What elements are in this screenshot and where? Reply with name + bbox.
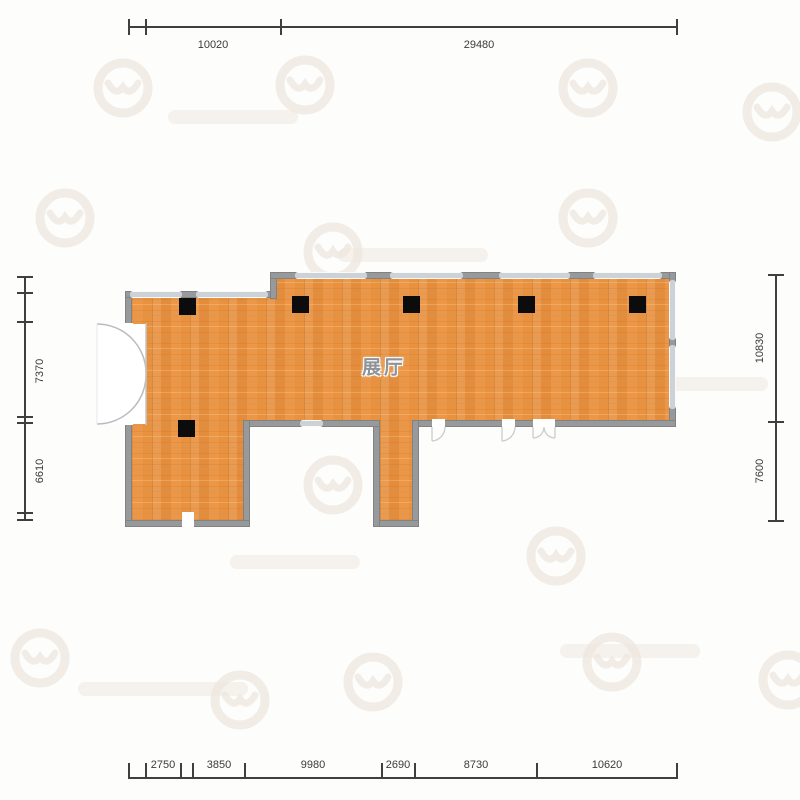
dim-tick: [244, 763, 246, 779]
dim-tick: [381, 763, 383, 779]
column-marker: [403, 296, 420, 313]
dim-label: 10020: [198, 39, 229, 51]
column-marker: [292, 296, 309, 313]
dim-tick: [180, 763, 182, 779]
dim-tick: [414, 763, 416, 779]
dim-label: 8730: [464, 759, 488, 771]
dim-label: 9980: [301, 759, 325, 771]
dim-tick: [17, 321, 33, 323]
dim-label: 7370: [34, 359, 46, 383]
dim-line: [775, 275, 777, 522]
dim-line: [129, 777, 678, 779]
dim-tick: [768, 421, 784, 423]
dim-tick: [768, 274, 784, 276]
floor-plan: 展厅 10020 29480 2750 3850 9980 2690 8730 …: [0, 0, 800, 800]
dim-tick: [17, 422, 33, 424]
dim-tick: [17, 292, 33, 294]
dim-tick: [280, 19, 282, 35]
dim-tick: [676, 19, 678, 35]
dim-tick: [128, 763, 130, 779]
column-marker: [179, 298, 196, 315]
dim-label: 10830: [754, 333, 766, 364]
dim-label: 3850: [207, 759, 231, 771]
column-marker: [518, 296, 535, 313]
dim-tick: [17, 276, 33, 278]
dim-tick: [128, 19, 130, 35]
dim-label: 2750: [151, 759, 175, 771]
dim-tick: [145, 763, 147, 779]
room-label: 展厅: [362, 353, 406, 380]
dim-tick: [17, 519, 33, 521]
dim-tick: [192, 763, 194, 779]
dim-line: [129, 26, 678, 28]
dim-line: [24, 277, 26, 521]
dim-label: 10620: [592, 759, 623, 771]
dim-label: 6610: [34, 459, 46, 483]
column-marker: [178, 420, 195, 437]
dim-tick: [17, 416, 33, 418]
dim-tick: [536, 763, 538, 779]
dim-tick: [768, 520, 784, 522]
dim-tick: [145, 19, 147, 35]
column-marker: [629, 296, 646, 313]
dim-tick: [676, 763, 678, 779]
dim-label: 2690: [386, 759, 410, 771]
dim-tick: [17, 512, 33, 514]
door-swing-icon: [0, 0, 800, 800]
dim-label: 29480: [464, 39, 495, 51]
dim-label: 7600: [754, 459, 766, 483]
